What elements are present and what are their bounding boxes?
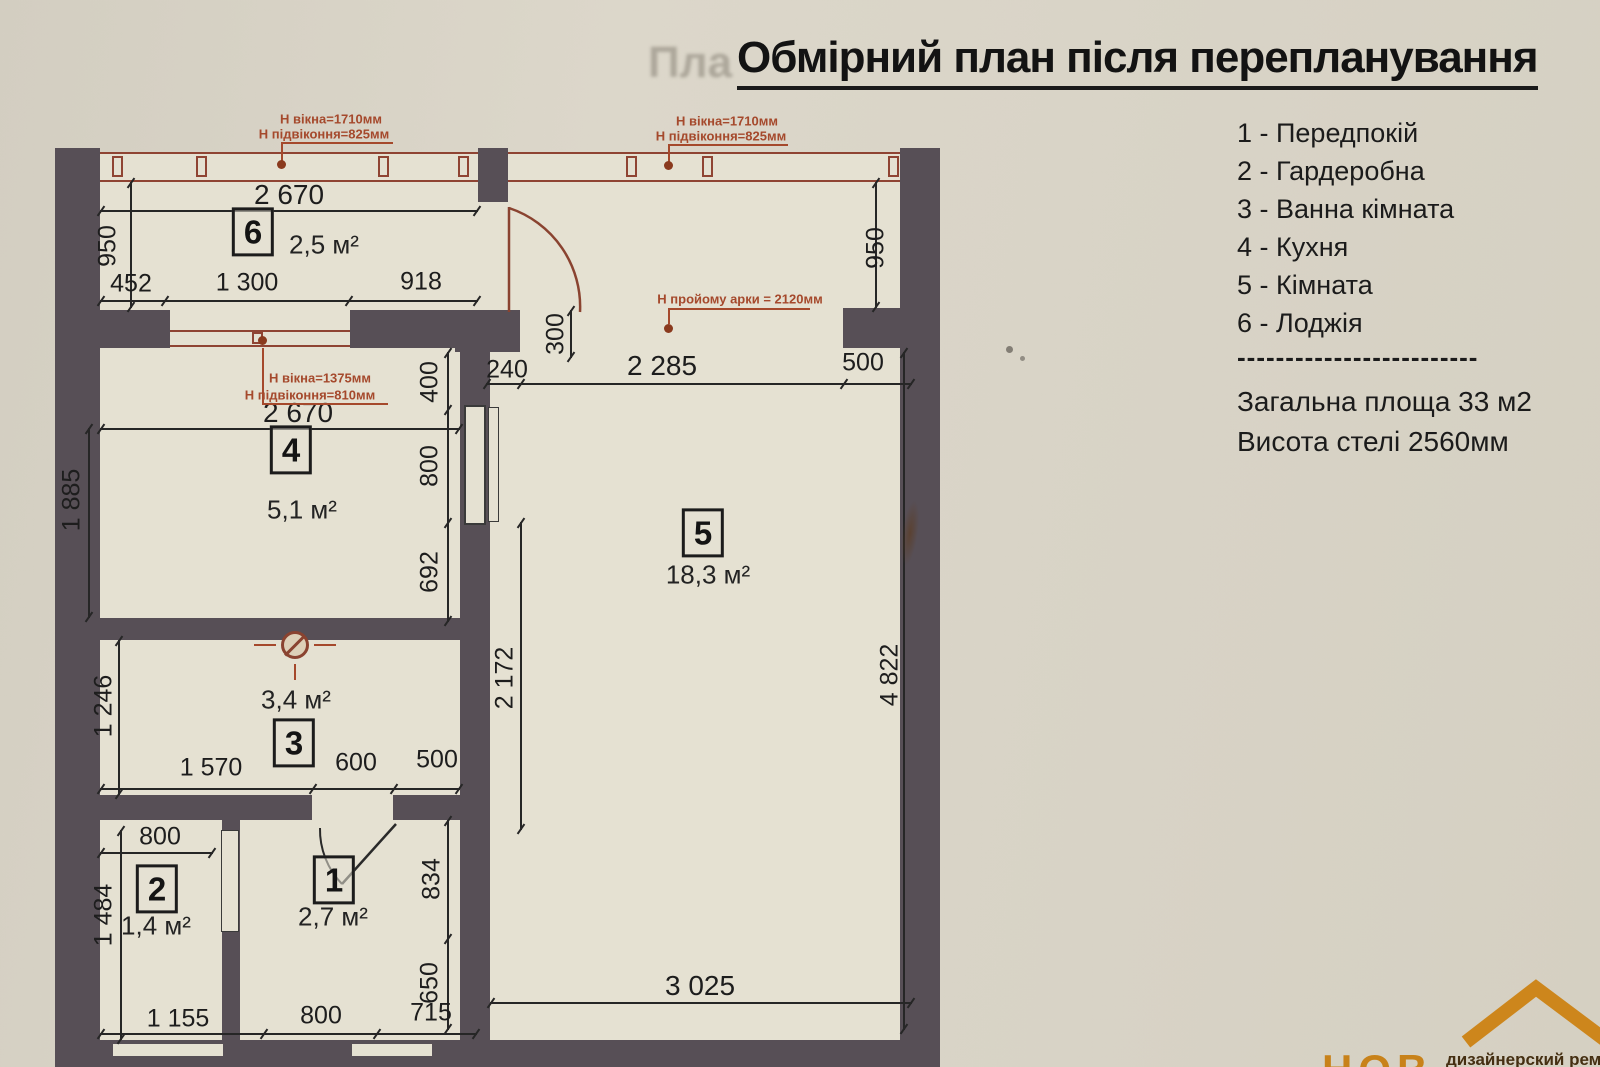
dimension-label: 950 [862,227,891,269]
dimension-label: 1 570 [180,754,243,783]
annotation-dot [664,324,673,333]
sliding-door-leaf [488,407,499,522]
annotation-leader [668,308,810,310]
dimension-line [100,300,478,302]
legend-item-2: 2 - Гардеробна [1237,152,1532,190]
logo-mark: НОВ [1322,1046,1433,1067]
wall-top-pillar [478,148,508,202]
window-mullion [196,156,207,177]
dimension-label: 1 155 [147,1005,210,1034]
room-area-6: 2,5 м² [289,230,359,261]
dimension-label: 834 [418,858,447,900]
window-annotation: Н вікна=1710мм [280,112,382,127]
threshold-mark [113,1044,223,1056]
window-mullion [626,156,637,177]
sliding-door-pocket [464,405,486,525]
legend-item-6: 6 - Лоджія [1237,304,1532,342]
wall-exterior-right [900,148,940,1067]
total-area-text: Загальна площа 33 м2 [1237,386,1532,418]
riser-dash [314,644,336,646]
arch-annotation: Н пройому арки = 2120мм [657,292,822,307]
loggia-window-band [100,152,478,182]
annotation-dot [664,161,673,170]
dimension-label: 4 822 [876,644,905,707]
wall-bath-hall-left [100,795,312,820]
window-mullion [458,156,469,177]
page-title: Обмірний план після перепланування [737,33,1538,90]
window-annotation: Н підвіконня=825мм [259,127,389,142]
annotation-leader [262,403,388,405]
dimension-label: 3 025 [665,970,735,1002]
room-area-5: 18,3 м² [666,560,750,591]
logo-tagline: дизайнерский ремонт [1446,1050,1600,1067]
dimension-label: 692 [416,551,445,593]
riser-dash [254,644,276,646]
wall-loggia-kitchen-left [100,310,170,348]
dimension-label: 800 [416,445,445,487]
dimension-line [88,428,90,618]
dimension-label: 1 246 [90,675,119,738]
ghost-bleed-text: Пла [648,38,732,88]
dimension-label: 800 [139,823,181,852]
legend: 1 - Передпокій 2 - Гардеробна 3 - Ванна … [1237,114,1532,458]
window-annotation: Н вікна=1375мм [269,371,371,386]
window-annotation: Н підвіконня=810мм [245,388,375,403]
room-number-5: 5 [682,508,724,557]
ceiling-height-text: Висота стелі 2560мм [1237,426,1532,458]
riser-symbol-icon [281,631,309,659]
dimension-label: 1 484 [90,884,119,947]
paper-speck [1006,346,1013,353]
room-number-1: 1 [313,855,355,904]
dimension-label: 2 285 [627,350,697,382]
dimension-label: 400 [416,361,445,403]
paper-speck [1020,356,1025,361]
dimension-label: 500 [416,746,458,775]
room-number-2: 2 [136,864,178,913]
balcony-door-arc [506,202,586,317]
dimension-label: 800 [300,1002,342,1031]
dimension-label: 2 172 [491,647,520,710]
dimension-label: 300 [542,313,571,355]
window-mullion [702,156,713,177]
window-mullion [112,156,123,177]
annotation-dot [277,160,286,169]
window-annotation: Н підвіконня=825мм [656,129,786,144]
annotation-leader [668,144,788,146]
scanned-floor-plan-page: { "title": "Обмірний план після переплан… [0,0,1600,1067]
window-mullion [378,156,389,177]
room-number-6: 6 [232,207,274,256]
riser-dash [294,664,296,680]
room-number-4: 4 [270,425,312,474]
room-number-3: 3 [273,718,315,767]
dimension-label: 452 [110,270,152,299]
dimension-label: 650 [416,962,445,1004]
window-mullion [888,156,899,177]
dimension-label: 2 670 [254,179,324,211]
annotation-leader [281,142,393,144]
dimension-label: 500 [842,349,884,378]
room2-door-leaf [221,830,239,932]
legend-item-4: 4 - Кухня [1237,228,1532,266]
room-area-3: 3,4 м² [261,685,331,716]
dimension-label: 918 [400,268,442,297]
room-area-4: 5,1 м² [267,495,337,526]
dimension-line [486,383,912,385]
threshold-mark [352,1044,432,1056]
dimension-label: 240 [486,356,528,385]
dimension-line [490,1002,912,1004]
legend-item-1: 1 - Передпокій [1237,114,1532,152]
legend-separator: ------------------------- [1237,342,1532,372]
annotation-leader [668,308,670,324]
dimension-label: 600 [335,749,377,778]
annotation-dot [258,336,267,345]
annotation-leader [262,348,264,403]
dimension-label: 1 300 [216,269,279,298]
window-annotation: Н вікна=1710мм [676,114,778,129]
legend-item-5: 5 - Кімната [1237,266,1532,304]
dimension-line [447,352,449,622]
wall-arch-right-stub [843,308,912,348]
dimension-line [520,522,522,830]
dimension-line [100,852,213,854]
room-area-2: 1,4 м² [121,911,191,942]
legend-item-3: 3 - Ванна кімната [1237,190,1532,228]
dimension-line [100,788,460,790]
dimension-label: 1 885 [58,469,87,532]
room-area-1: 2,7 м² [298,902,368,933]
wall-kitchen-bath [100,618,460,640]
dimension-label: 950 [94,225,123,267]
